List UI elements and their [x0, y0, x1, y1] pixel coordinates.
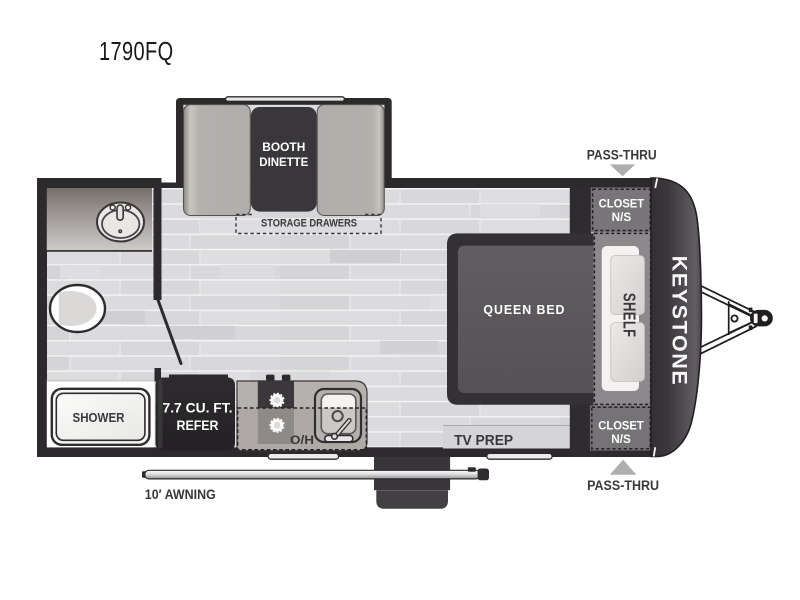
svg-text:KEYSTONE: KEYSTONE [667, 256, 691, 387]
svg-text:SHELF: SHELF [619, 293, 639, 338]
svg-text:10′ AWNING: 10′ AWNING [145, 486, 216, 502]
svg-text:REFER: REFER [177, 417, 219, 433]
svg-text:STORAGE DRAWERS: STORAGE DRAWERS [261, 217, 357, 229]
svg-text:PASS-THRU: PASS-THRU [587, 148, 657, 164]
svg-text:N/S: N/S [612, 210, 632, 224]
svg-text:SHOWER: SHOWER [73, 410, 126, 425]
svg-text:BOOTH: BOOTH [262, 140, 305, 154]
svg-text:CLOSET: CLOSET [599, 197, 645, 211]
svg-text:TV PREP: TV PREP [454, 432, 513, 449]
svg-text:1790FQ: 1790FQ [99, 36, 174, 66]
svg-text:N/S: N/S [611, 432, 631, 446]
svg-text:DINETTE: DINETTE [259, 155, 308, 169]
svg-text:PASS-THRU: PASS-THRU [587, 478, 659, 494]
svg-text:CLOSET: CLOSET [598, 419, 644, 433]
svg-text:QUEEN BED: QUEEN BED [483, 302, 565, 317]
svg-text:7.7 CU. FT.: 7.7 CU. FT. [163, 400, 233, 416]
svg-text:O/H: O/H [290, 433, 314, 447]
